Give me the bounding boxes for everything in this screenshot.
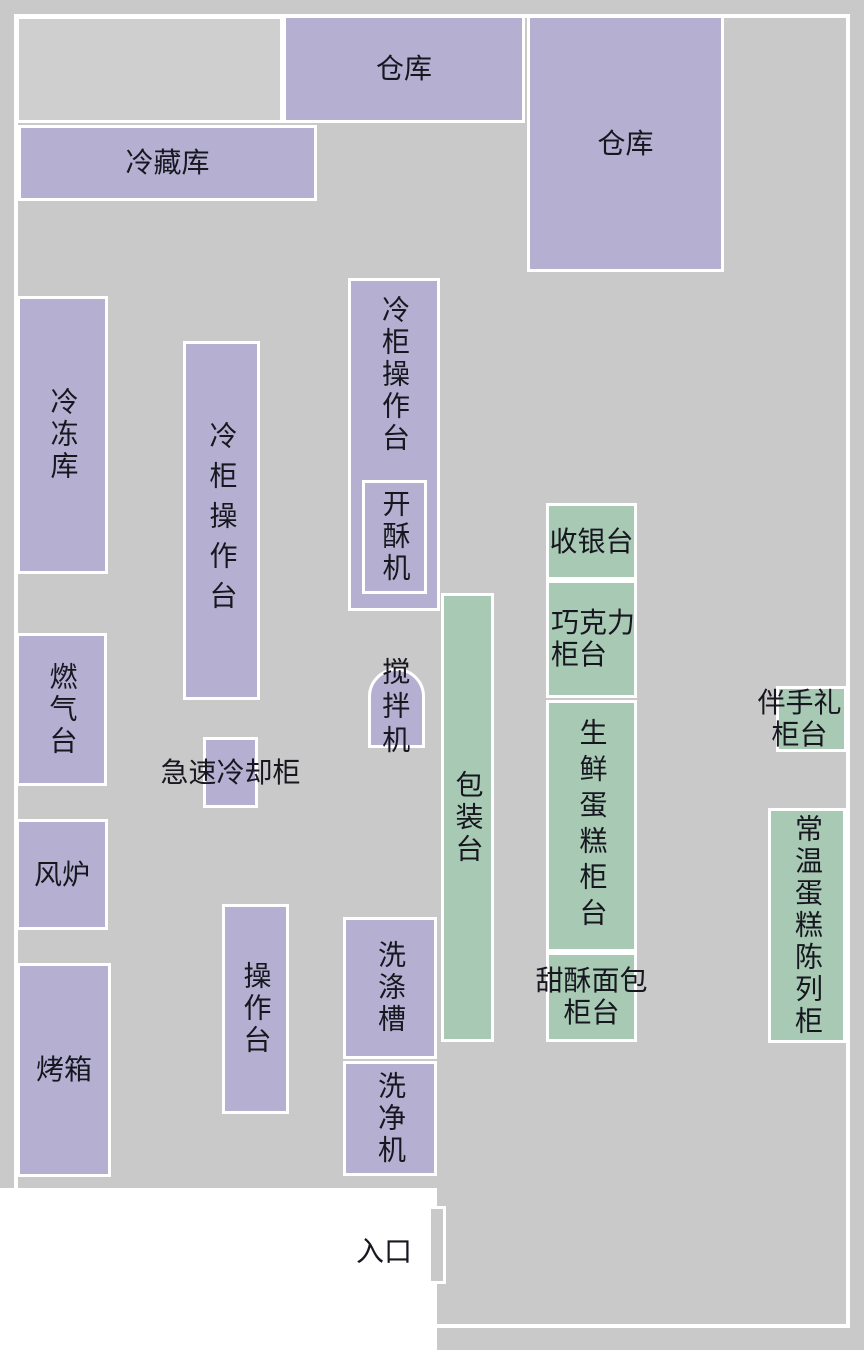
- room-cashier-label: 收银台: [549, 526, 633, 558]
- room-mixer-label: 搅拌机: [380, 657, 408, 759]
- room-freezer-label: 冷冻库: [49, 387, 77, 483]
- room-dough-sheeter: 开酥机: [362, 480, 427, 594]
- room-cold-storage: 冷藏库: [18, 125, 317, 201]
- room-warehouse-right-label: 仓库: [597, 128, 653, 160]
- room-warehouse-top: 仓库: [283, 15, 525, 123]
- room-gas-stove-label: 燃气台: [48, 662, 76, 758]
- room-warehouse-right: 仓库: [527, 15, 724, 272]
- room-washing-sink: 洗涤槽: [343, 917, 437, 1059]
- room-ambient-cake-display-label: 常温蛋糕陈列柜: [793, 814, 821, 1038]
- wall-right: [846, 14, 850, 1328]
- room-unlabeled: [16, 16, 283, 123]
- room-fresh-cake-counter-label: 生鲜蛋糕柜台: [578, 718, 606, 934]
- room-fresh-cake-counter: 生鲜蛋糕柜台: [546, 700, 637, 952]
- room-dough-sheeter-label: 开酥机: [381, 489, 409, 585]
- room-cold-counter-mid-label: 冷柜操作台: [380, 295, 408, 455]
- room-packing-counter-label: 包装台: [454, 770, 482, 866]
- room-convection-oven-label: 风炉: [34, 859, 90, 891]
- room-gift-counter-label: 伴手礼 柜台: [758, 687, 842, 751]
- room-chocolate-counter-label: 巧克力 柜台: [549, 607, 635, 671]
- room-convection-oven: 风炉: [16, 819, 108, 930]
- room-washer: 洗净机: [343, 1061, 437, 1176]
- room-oven-label: 烤箱: [36, 1054, 92, 1086]
- room-mixer: 搅拌机: [368, 668, 425, 748]
- room-gas-stove: 燃气台: [16, 633, 107, 786]
- room-freezer: 冷冻库: [17, 296, 108, 574]
- room-gift-counter: 伴手礼 柜台: [776, 686, 847, 752]
- room-rapid-cooling-label: 急速冷却柜: [161, 757, 301, 789]
- room-packing-counter: 包装台: [441, 593, 494, 1042]
- room-cold-counter-left: 冷柜操作台: [183, 341, 260, 700]
- entrance-label: 入口: [338, 1230, 430, 1270]
- room-cold-storage-label: 冷藏库: [125, 147, 209, 179]
- room-oven: 烤箱: [17, 963, 111, 1177]
- floor-plan: 仓库 仓库 冷藏库 冷冻库 冷柜操作台 冷柜操作台 开酥机 燃气台 急速冷却柜 …: [0, 0, 864, 1350]
- room-mixer-label-holder: 搅拌机: [380, 657, 408, 764]
- room-cashier: 收银台: [546, 503, 637, 580]
- room-work-counter: 操作台: [222, 904, 289, 1114]
- room-warehouse-top-label: 仓库: [376, 53, 432, 85]
- room-cold-counter-left-label: 冷柜操作台: [208, 421, 236, 621]
- room-ambient-cake-display: 常温蛋糕陈列柜: [768, 808, 846, 1043]
- entrance-door: [428, 1206, 446, 1284]
- room-rapid-cooling: 急速冷却柜: [203, 737, 258, 808]
- room-washing-sink-label: 洗涤槽: [376, 940, 404, 1036]
- room-sweet-bread-counter: 甜酥面包 柜台: [546, 952, 637, 1042]
- room-sweet-bread-counter-label: 甜酥面包 柜台: [536, 965, 648, 1029]
- room-washer-label: 洗净机: [376, 1071, 404, 1167]
- room-chocolate-counter: 巧克力 柜台: [546, 580, 637, 698]
- room-work-counter-label: 操作台: [242, 961, 270, 1057]
- wall-bottom: [437, 1324, 848, 1328]
